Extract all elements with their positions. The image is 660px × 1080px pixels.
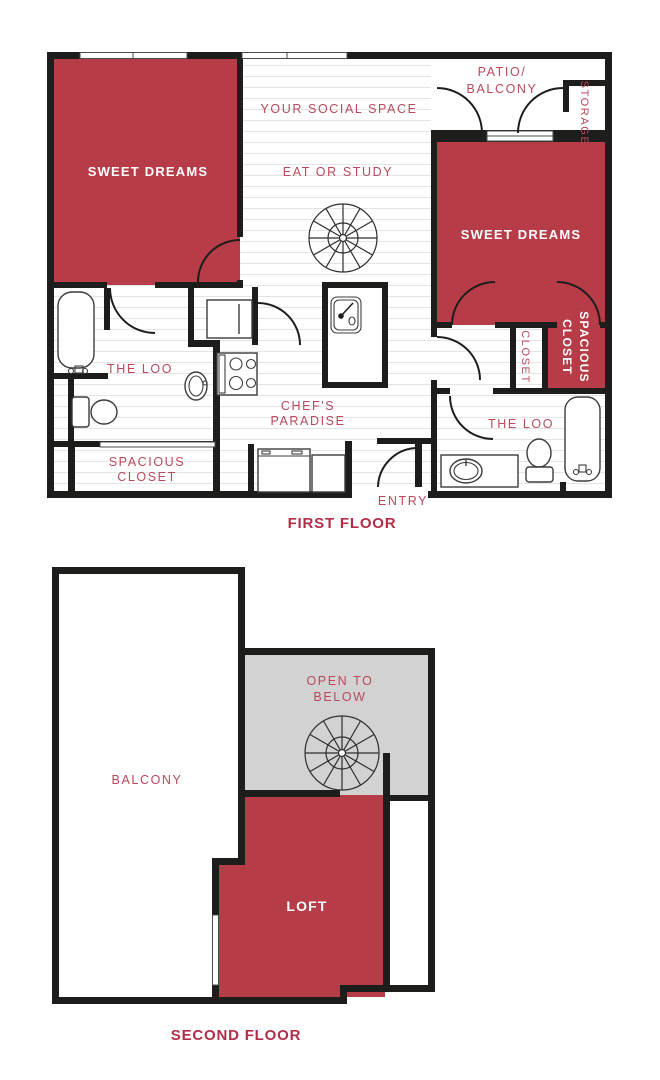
- label-patio-line2: BALCONY: [467, 82, 538, 96]
- second-floor-title: SECOND FLOOR: [171, 1027, 301, 1044]
- label-spacious-closet-left-line2: CLOSET: [117, 470, 177, 484]
- kitchen-island: [325, 285, 385, 385]
- loft-area-extension: [219, 865, 249, 997]
- spacious-closet-right-area: [548, 322, 605, 388]
- first-floor-plan: SWEET DREAMS YOUR SOCIAL SPACE EAT OR ST…: [47, 52, 612, 532]
- closet-slider: [100, 442, 215, 447]
- label-patio-line1: PATIO/: [478, 65, 527, 79]
- floor-plan-page: SWEET DREAMS YOUR SOCIAL SPACE EAT OR ST…: [0, 0, 660, 1080]
- window-social-space: [242, 53, 347, 59]
- label-bedroom-left: SWEET DREAMS: [88, 164, 209, 179]
- floor-plan-drawing: SWEET DREAMS YOUR SOCIAL SPACE EAT OR ST…: [0, 0, 660, 1080]
- label-bedroom-right: SWEET DREAMS: [461, 227, 582, 242]
- second-floor-plan: BALCONY OPEN TO BELOW LOFT SECOND FLOOR: [52, 567, 435, 1044]
- label-kitchen-line2: PARADISE: [270, 414, 345, 428]
- loft-area: [245, 795, 385, 997]
- label-open-below-line2: BELOW: [313, 690, 366, 704]
- spiral-stair-first-floor: [309, 204, 377, 272]
- laundry-fixtures: [258, 449, 345, 492]
- toilet-right-bowl: [527, 439, 551, 467]
- label-kitchen-line1: CHEF'S: [281, 399, 335, 413]
- label-storage: STORAGE: [578, 81, 590, 146]
- label-closet: CLOSET: [519, 330, 531, 384]
- label-spacious-closet-right-line1: SPACIOUS: [577, 311, 591, 382]
- label-social-space: YOUR SOCIAL SPACE: [260, 102, 417, 116]
- label-open-below-line1: OPEN TO: [306, 674, 373, 688]
- label-loo-left: THE LOO: [107, 362, 173, 376]
- toilet-right-tank: [526, 467, 553, 482]
- bathtub-right: [565, 397, 600, 481]
- dryer: [312, 455, 345, 492]
- bathtub-left: [58, 292, 94, 368]
- label-eat-or-study: EAT OR STUDY: [283, 165, 393, 179]
- refrigerator: [207, 300, 252, 338]
- label-spacious-closet-left-line1: SPACIOUS: [109, 455, 185, 469]
- toilet-left-tank: [72, 397, 89, 427]
- spiral-stair-second-floor: [305, 716, 379, 790]
- window-loft: [213, 915, 219, 985]
- toilet-left-bowl: [91, 400, 117, 424]
- first-floor-title: FIRST FLOOR: [288, 515, 397, 532]
- label-spacious-closet-right-line2: CLOSET: [560, 319, 574, 375]
- label-entry: ENTRY: [378, 494, 428, 508]
- label-loo-right: THE LOO: [488, 417, 554, 431]
- label-balcony: BALCONY: [112, 773, 183, 787]
- label-loft: LOFT: [286, 898, 327, 914]
